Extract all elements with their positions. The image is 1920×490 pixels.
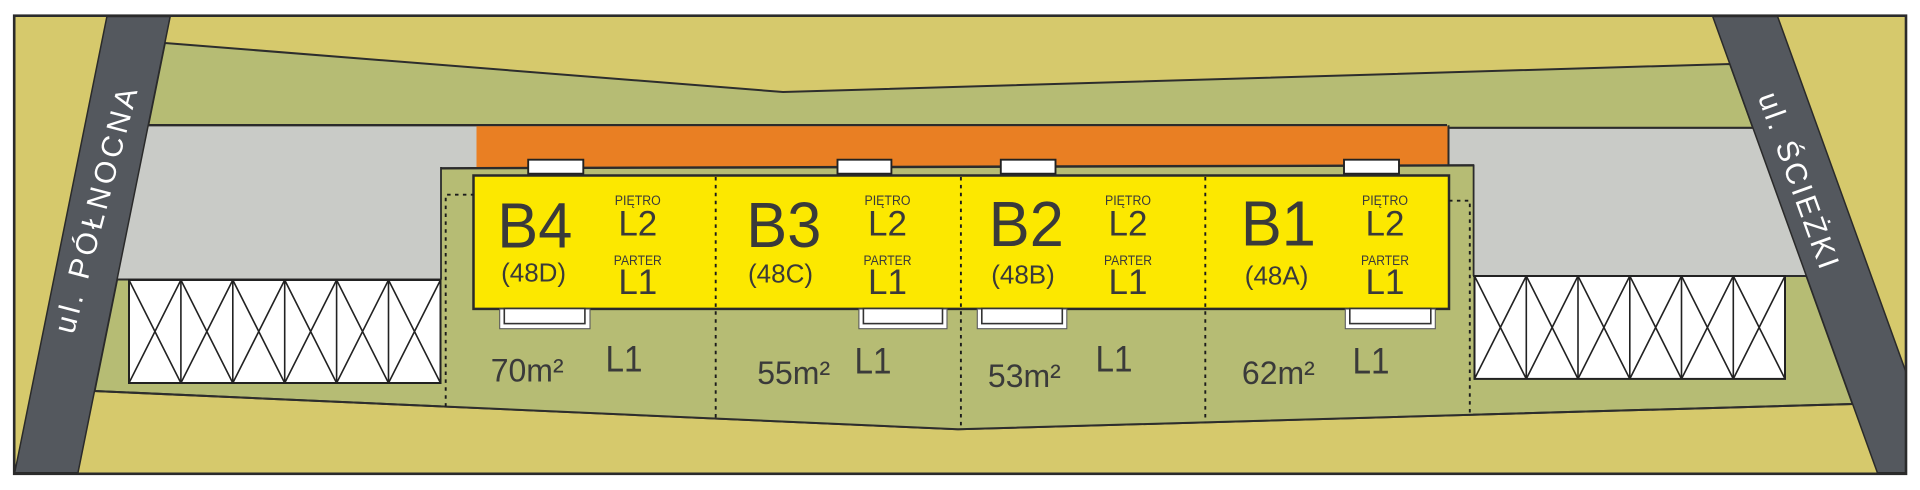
svg-text:L2: L2	[1366, 204, 1405, 243]
svg-text:B4: B4	[497, 189, 572, 261]
svg-text:L1: L1	[606, 338, 643, 379]
svg-text:L1: L1	[1366, 263, 1405, 302]
svg-text:62m²: 62m²	[1242, 355, 1315, 391]
svg-text:L2: L2	[1109, 204, 1148, 243]
svg-text:L1: L1	[1109, 263, 1148, 302]
svg-text:(48C): (48C)	[748, 259, 813, 289]
svg-text:55m²: 55m²	[757, 355, 830, 391]
svg-text:70m²: 70m²	[491, 352, 564, 388]
svg-text:L1: L1	[1096, 339, 1133, 380]
svg-text:(48B): (48B)	[991, 259, 1055, 289]
svg-text:L1: L1	[868, 263, 907, 302]
svg-text:(48A): (48A)	[1245, 260, 1309, 290]
svg-text:B2: B2	[989, 188, 1064, 260]
svg-text:B1: B1	[1241, 188, 1316, 260]
svg-text:L2: L2	[618, 204, 657, 243]
svg-text:L2: L2	[868, 204, 907, 243]
svg-text:B3: B3	[746, 189, 821, 261]
svg-text:(48D): (48D)	[501, 258, 566, 288]
svg-text:L1: L1	[618, 263, 657, 302]
svg-text:L1: L1	[1353, 341, 1390, 382]
svg-text:53m²: 53m²	[988, 358, 1061, 394]
svg-text:L1: L1	[855, 341, 892, 382]
